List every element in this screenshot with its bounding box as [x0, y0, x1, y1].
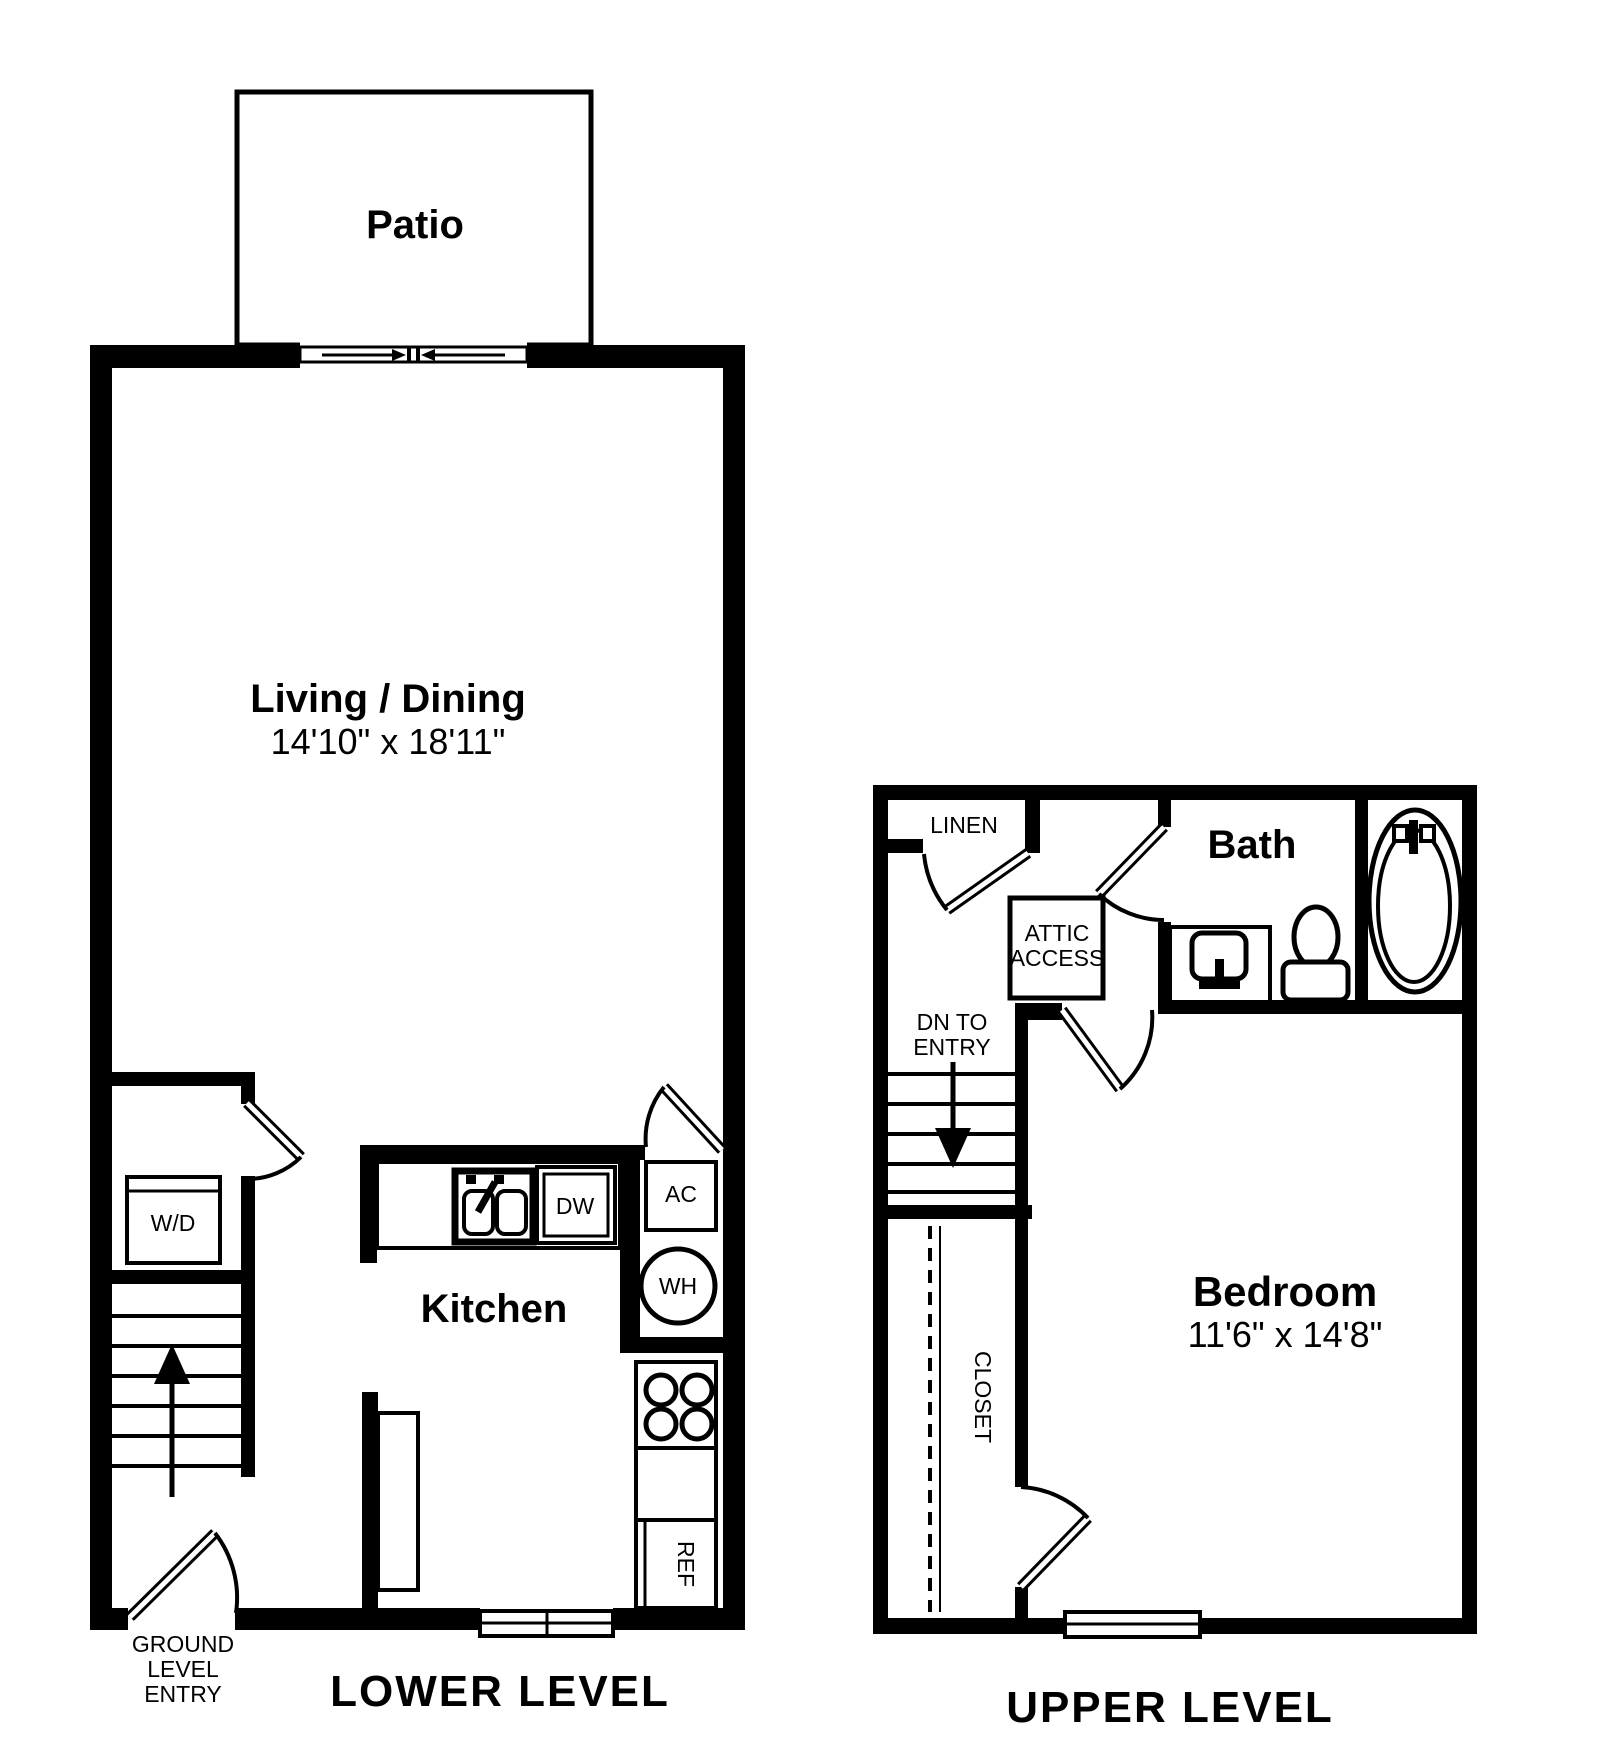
upper-level-plan: LINEN Bath	[873, 785, 1477, 1732]
dishwasher-label: DW	[556, 1193, 595, 1219]
kitchen-label: Kitchen	[421, 1287, 568, 1331]
water-heater-label: WH	[659, 1273, 697, 1299]
kitchen-sink	[455, 1171, 533, 1242]
bedroom-door	[1062, 1010, 1152, 1089]
patio-sliding-door	[300, 342, 527, 371]
utility-closet-door	[646, 1087, 722, 1150]
lower-south-wall-seg2	[235, 1608, 480, 1630]
bath-vanity	[1170, 927, 1270, 1002]
stairs-note-line1: DN TO	[917, 1009, 988, 1035]
entry-door	[130, 1533, 237, 1617]
stairs-up	[112, 1284, 255, 1497]
bedroom-closet: CLOSET	[930, 1226, 1088, 1618]
range-ref-strip: REF	[636, 1362, 716, 1608]
ac-label: AC	[665, 1181, 697, 1207]
tub-faucet-icon	[1409, 820, 1418, 854]
patio-label: Patio	[366, 203, 464, 247]
lower-level-plan: Patio Living / Dining 14'10" x 18'11"	[90, 92, 745, 1716]
linen-label: LINEN	[930, 812, 998, 838]
stairs-note-line2: ENTRY	[913, 1034, 991, 1060]
closet-label: CLOSET	[970, 1351, 996, 1443]
utility-closet: AC WH	[641, 1087, 722, 1323]
dishwasher: DW	[537, 1167, 615, 1243]
up-arrow-icon	[154, 1344, 190, 1384]
laundry-closet: W/D	[90, 1072, 301, 1284]
lower-west-wall	[90, 345, 112, 1630]
living-dining-dimensions: 14'10" x 18'11"	[271, 721, 506, 762]
lower-south-wall-seg3	[613, 1608, 744, 1630]
closet-door	[1021, 1487, 1088, 1587]
lower-east-wall	[723, 345, 745, 1630]
lower-window	[480, 1611, 613, 1636]
laundry-door	[247, 1103, 301, 1179]
attic-access-line2: ACCESS	[1010, 945, 1105, 971]
bedroom-label: Bedroom	[1193, 1268, 1377, 1315]
attic-access: ATTIC ACCESS	[1010, 898, 1105, 998]
bath-door	[1099, 827, 1164, 920]
living-dining-label: Living / Dining	[250, 677, 526, 721]
bath-label: Bath	[1208, 823, 1297, 867]
upper-south-wall-seg1	[873, 1618, 1065, 1634]
tub-divider-wall	[1355, 800, 1368, 1000]
upper-north-wall	[873, 785, 1477, 800]
floor-plan-drawing: Patio Living / Dining 14'10" x 18'11"	[0, 0, 1622, 1760]
upper-level-caption: UPPER LEVEL	[1006, 1683, 1334, 1732]
entry-label-line3: ENTRY	[144, 1681, 222, 1707]
attic-access-line1: ATTIC	[1025, 920, 1090, 946]
entry-label-line2: LEVEL	[147, 1656, 219, 1682]
bathtub	[1369, 810, 1461, 992]
toilet	[1283, 907, 1348, 1000]
refrigerator-label: REF	[673, 1541, 699, 1587]
linen-closet: LINEN	[888, 800, 1040, 910]
bedroom-window	[1065, 1612, 1200, 1637]
upper-south-wall-seg2	[1200, 1618, 1477, 1634]
washer-dryer-label: W/D	[151, 1210, 196, 1236]
entry-label-line1: GROUND	[132, 1631, 234, 1657]
kitchen-pantry-counter	[378, 1413, 418, 1590]
lower-level-caption: LOWER LEVEL	[330, 1667, 670, 1716]
upper-west-wall	[873, 785, 888, 1634]
lower-south-wall-seg1	[90, 1608, 128, 1630]
bedroom-dimensions: 11'6" x 14'8"	[1188, 1314, 1383, 1355]
floor-plan-page: Patio Living / Dining 14'10" x 18'11"	[0, 0, 1622, 1760]
bathroom: Bath	[1099, 800, 1477, 1014]
upper-east-wall	[1462, 785, 1477, 1634]
